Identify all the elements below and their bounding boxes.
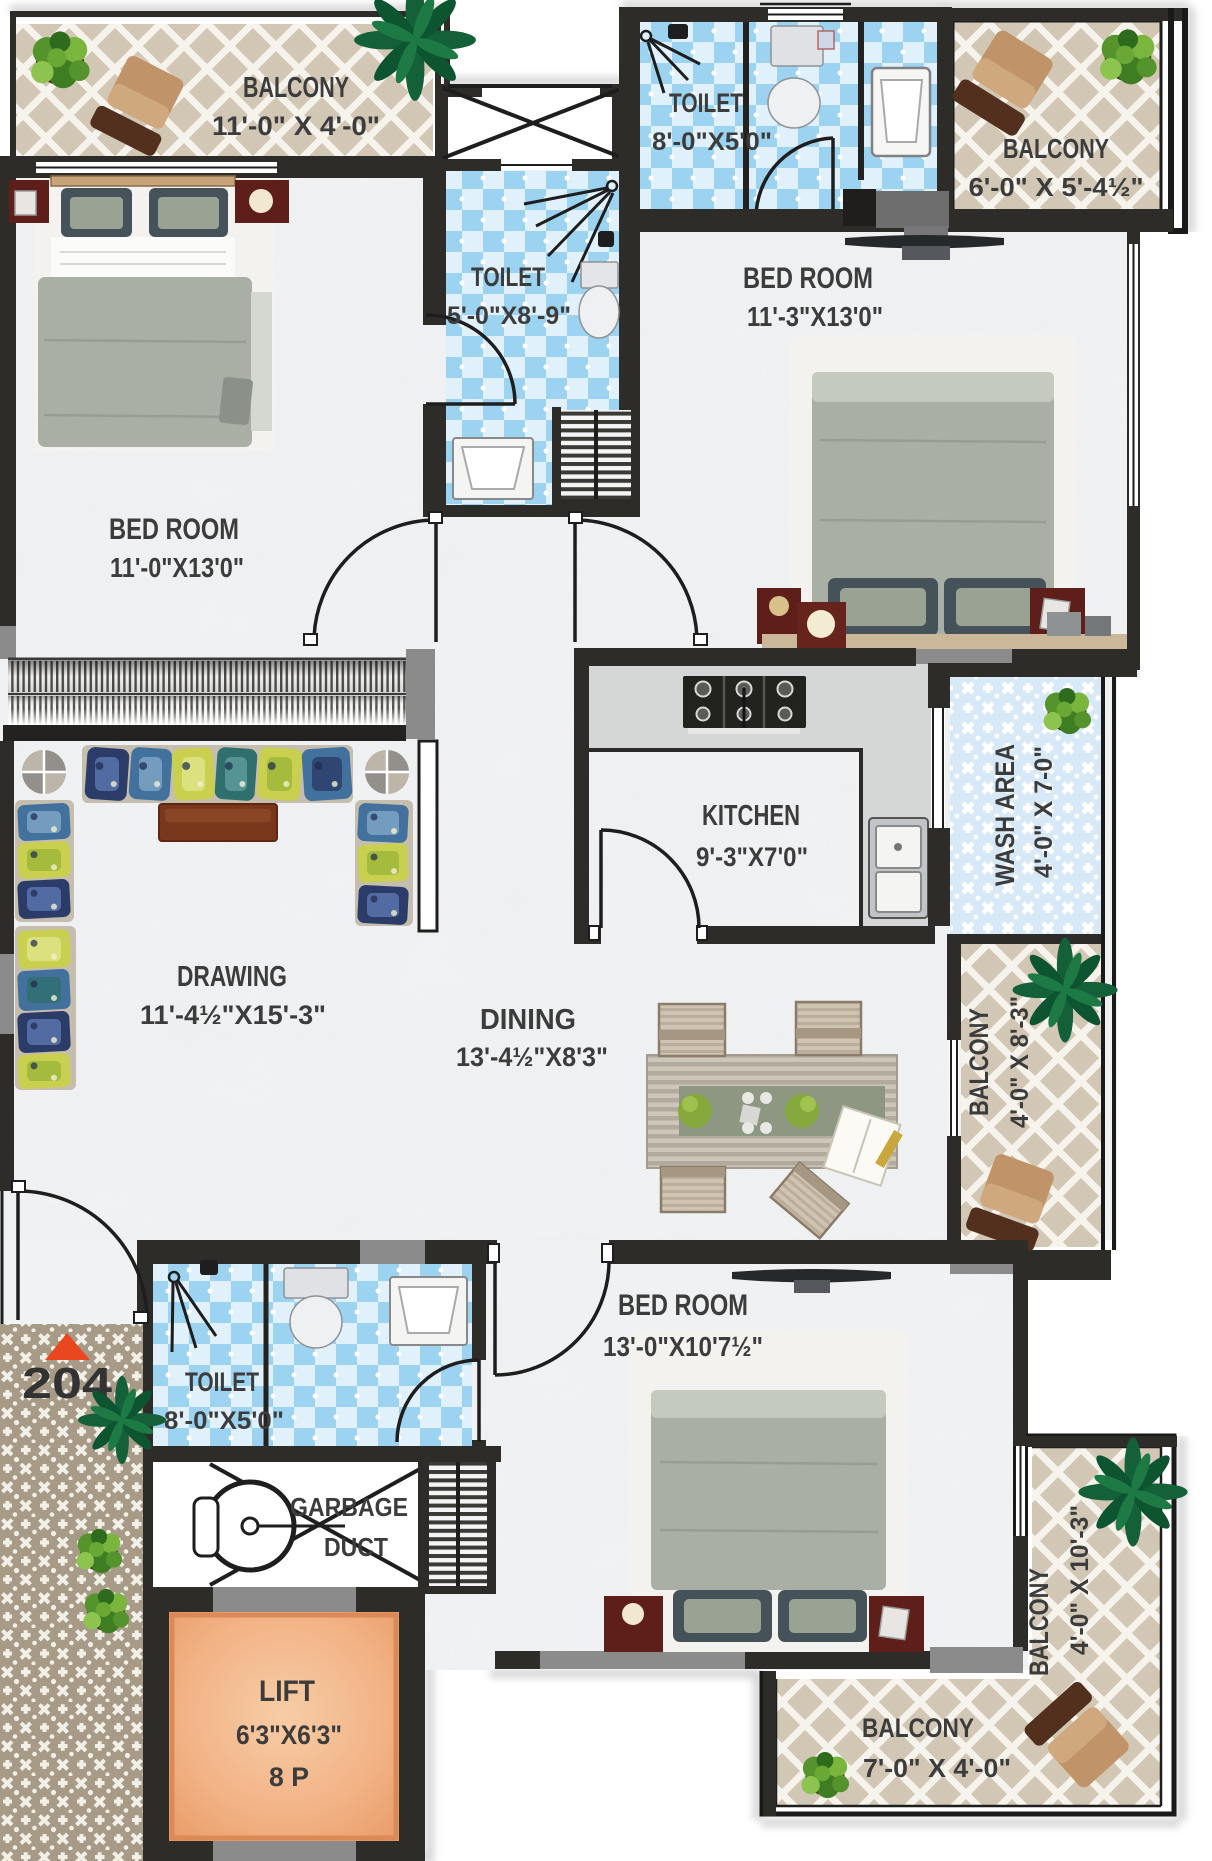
svg-text:5'-0"X8'-9": 5'-0"X8'-9" [447,302,571,330]
svg-text:DINING: DINING [480,1004,576,1036]
svg-text:8 P: 8 P [269,1762,309,1792]
svg-text:TOILET: TOILET [185,1367,259,1397]
svg-text:11'-4½"X15'-3": 11'-4½"X15'-3" [140,1000,326,1030]
svg-text:BALCONY: BALCONY [862,1713,974,1743]
svg-text:11'-0" X 4'-0": 11'-0" X 4'-0" [212,111,380,141]
svg-text:WASH AREA: WASH AREA [990,744,1020,886]
svg-text:DUCT: DUCT [324,1532,388,1562]
svg-text:9'-3"X7'0": 9'-3"X7'0" [696,842,808,872]
svg-text:6'3"X6'3": 6'3"X6'3" [236,1720,342,1750]
svg-text:BALCONY: BALCONY [1024,1568,1054,1676]
svg-text:13'-4½"X8'3": 13'-4½"X8'3" [456,1042,608,1072]
svg-text:TOILET: TOILET [471,262,545,292]
svg-text:13'-0"X10'7½": 13'-0"X10'7½" [603,1331,763,1362]
svg-text:4'-0" X 7-0": 4'-0" X 7-0" [1030,746,1058,878]
svg-text:BED ROOM: BED ROOM [743,262,873,295]
svg-text:DRAWING: DRAWING [177,961,287,993]
svg-text:BALCONY: BALCONY [964,1008,994,1116]
svg-text:8'-0"X5'0": 8'-0"X5'0" [164,1407,284,1435]
svg-text:4'-0" X 10'-3": 4'-0" X 10'-3" [1066,1505,1094,1655]
svg-text:7'-0" X 4'-0": 7'-0" X 4'-0" [863,1753,1011,1783]
svg-text:KITCHEN: KITCHEN [702,800,800,832]
svg-text:11'-3"X13'0": 11'-3"X13'0" [747,301,883,332]
svg-text:BED ROOM: BED ROOM [618,1289,748,1322]
svg-text:BALCONY: BALCONY [1003,133,1109,164]
svg-text:8'-0"X5'0": 8'-0"X5'0" [652,128,772,156]
svg-text:TOILET: TOILET [669,88,743,118]
svg-text:GARBAGE: GARBAGE [290,1492,408,1522]
svg-text:6'-0" X 5'-4½": 6'-0" X 5'-4½" [969,172,1144,202]
svg-text:BALCONY: BALCONY [243,72,349,104]
svg-text:LIFT: LIFT [259,1675,315,1708]
svg-text:BED ROOM: BED ROOM [109,513,239,546]
svg-text:4'-0" X 8'-3": 4'-0" X 8'-3" [1006,996,1034,1128]
svg-text:11'-0"X13'0": 11'-0"X13'0" [110,552,244,583]
